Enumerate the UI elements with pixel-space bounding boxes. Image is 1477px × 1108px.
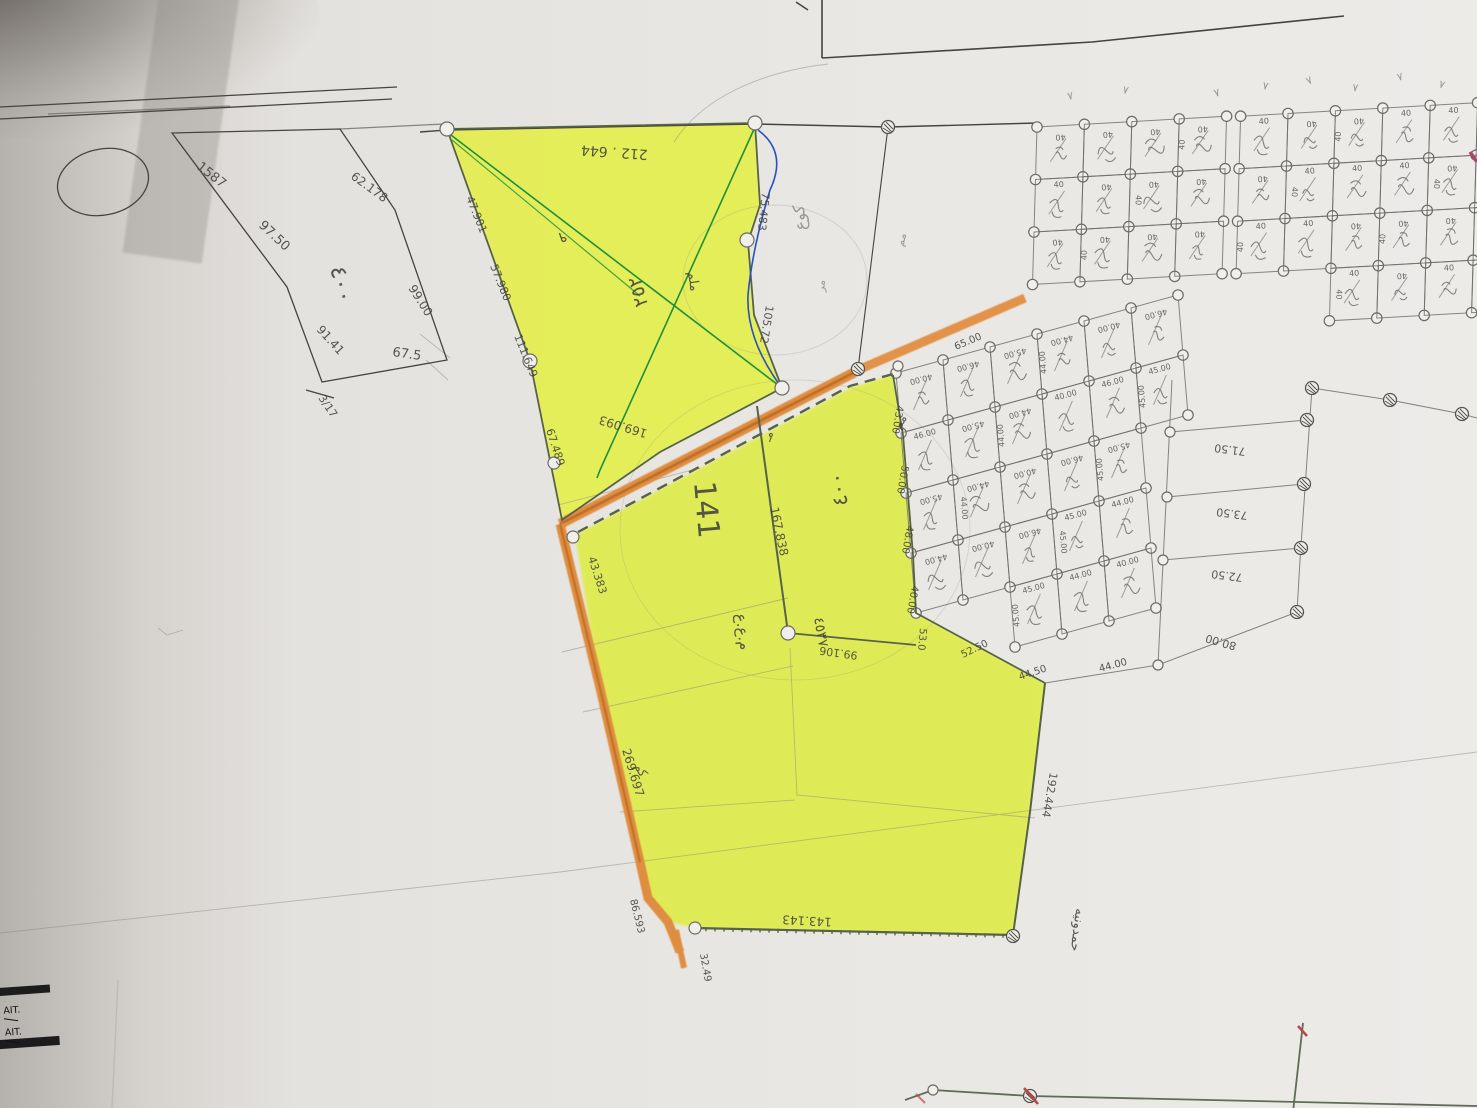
grid-node bbox=[1027, 279, 1037, 289]
bottom-edge-143-143: 143.143 bbox=[782, 912, 832, 929]
plot-dim-label: 40 bbox=[1399, 161, 1410, 171]
grid-node bbox=[1173, 290, 1183, 300]
grid-node bbox=[1183, 410, 1193, 420]
grid-node bbox=[1324, 316, 1334, 326]
grid-node bbox=[1010, 642, 1020, 652]
plot-dim-label: 40 bbox=[1334, 131, 1343, 141]
plot-dim-label: 40 bbox=[1401, 108, 1412, 118]
plot-dim-label: 40 bbox=[1053, 180, 1064, 190]
cadastral-sketch: 4040404040404040404040404040404040404040… bbox=[0, 0, 1477, 1108]
hw-word: مر bbox=[814, 279, 828, 293]
legend-line-2: AIT. bbox=[5, 1027, 23, 1039]
plot-dim-label: 40 bbox=[1303, 219, 1314, 229]
plot-dim-label: 40 bbox=[1177, 139, 1186, 149]
plot-dim-label: 40 bbox=[1352, 164, 1363, 174]
grid-node bbox=[1235, 111, 1245, 121]
plot-dim-label: 40 bbox=[1304, 166, 1315, 176]
plot-dim-label: 40 bbox=[1334, 289, 1343, 299]
plot-dim-label: 40 bbox=[1448, 106, 1459, 116]
grid-node bbox=[1231, 269, 1241, 279]
plot-dim-label: 40 bbox=[1349, 269, 1360, 279]
hw-column: م.ع.ع bbox=[732, 613, 754, 651]
map-photo-stage: 4040404040404040404040404040404040404040… bbox=[0, 0, 1477, 1108]
grid-edge-53-0: 53.0 bbox=[915, 628, 928, 651]
hw-word: كوع bbox=[789, 204, 811, 231]
plot-dim-label: 40 bbox=[1378, 234, 1387, 244]
grid-node bbox=[1151, 603, 1161, 613]
grid-node bbox=[1472, 98, 1477, 108]
plot-dim-label: 40 bbox=[1259, 117, 1270, 127]
plot-dim-label: 40 bbox=[1444, 263, 1455, 273]
plot-dim-label: 40 bbox=[1134, 195, 1143, 205]
legend-line-1: AIT. bbox=[3, 1005, 21, 1017]
plot-dim-label: 40 bbox=[1256, 222, 1267, 232]
grid-node bbox=[1221, 111, 1231, 121]
plot-dim-label: 40 bbox=[1080, 250, 1089, 260]
grid-node bbox=[1032, 122, 1042, 132]
parcel-number-141: 141 bbox=[686, 480, 726, 540]
hw-word: ملم bbox=[684, 270, 702, 292]
plot-dim-label: 40 bbox=[1290, 187, 1299, 197]
plot-dim-label: 40 bbox=[1432, 179, 1441, 189]
grid-node bbox=[1217, 269, 1227, 279]
plot-dim-label: 40 bbox=[1236, 242, 1245, 252]
